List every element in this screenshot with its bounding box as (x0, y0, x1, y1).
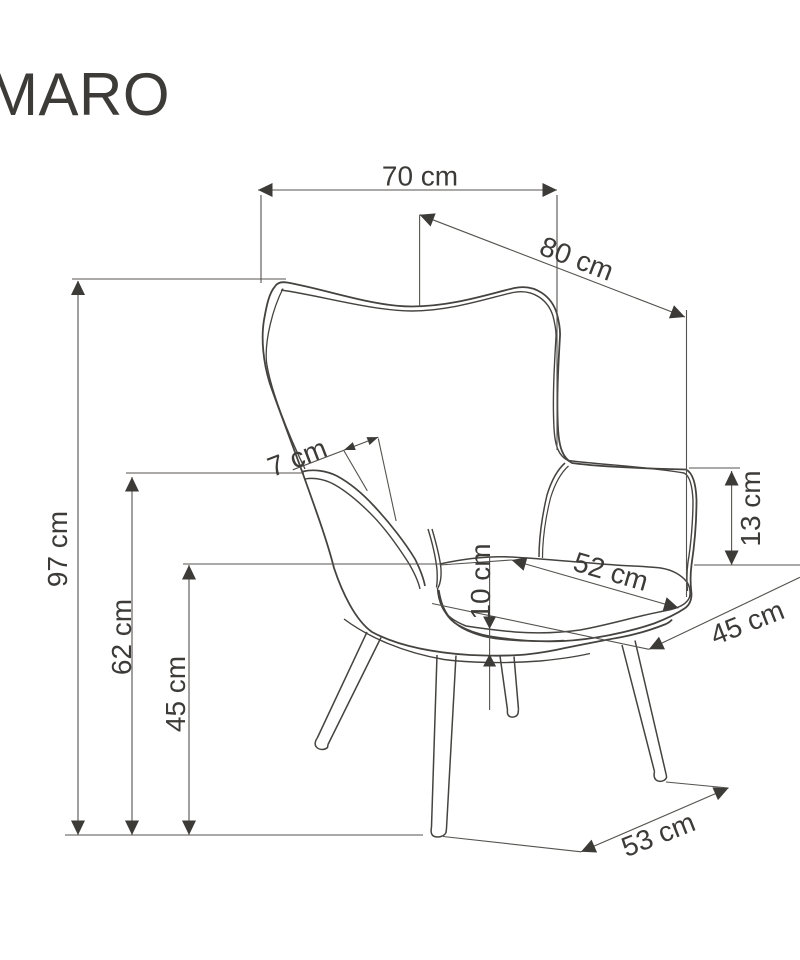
svg-text:53 cm: 53 cm (617, 806, 699, 863)
svg-text:7 cm: 7 cm (263, 432, 331, 483)
svg-text:62 cm: 62 cm (106, 599, 137, 675)
svg-text:97 cm: 97 cm (42, 511, 73, 587)
svg-text:45 cm: 45 cm (160, 656, 191, 732)
svg-text:10 cm: 10 cm (465, 543, 496, 619)
svg-text:13 cm: 13 cm (735, 470, 766, 546)
svg-text:MARO: MARO (0, 61, 170, 128)
svg-text:70 cm: 70 cm (382, 161, 458, 192)
svg-text:52 cm: 52 cm (570, 546, 652, 597)
svg-text:80 cm: 80 cm (536, 230, 618, 286)
